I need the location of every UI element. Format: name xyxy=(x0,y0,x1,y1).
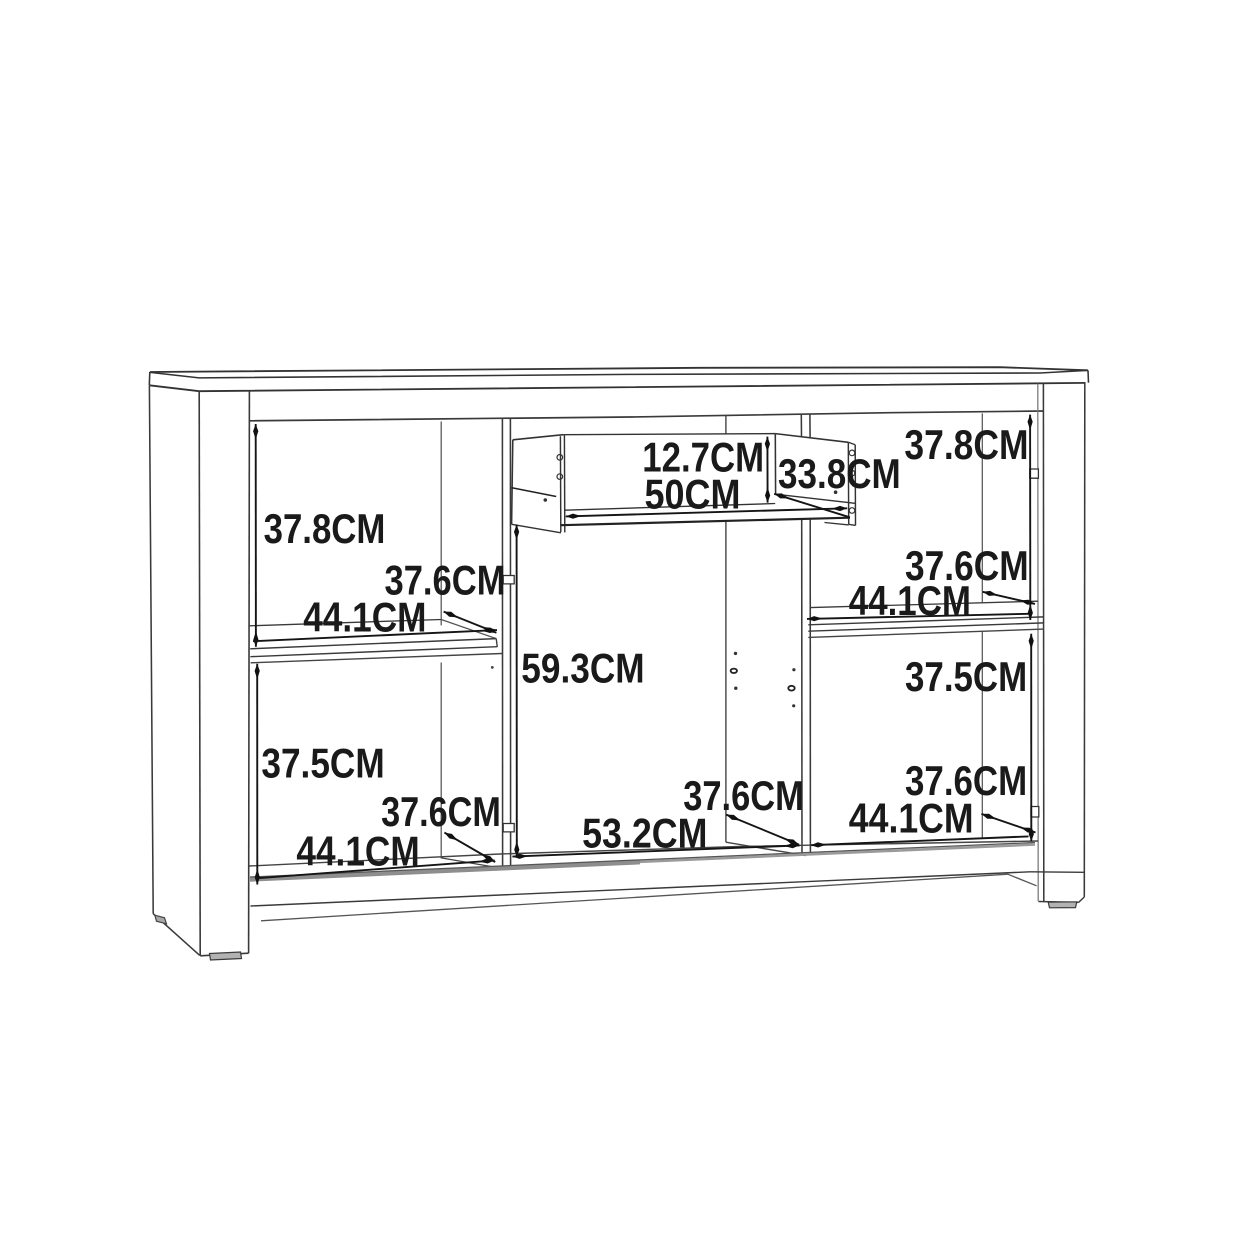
svg-text:37.8CM: 37.8CM xyxy=(904,421,1028,468)
svg-text:44.1CM: 44.1CM xyxy=(849,795,974,842)
svg-text:53.2CM: 53.2CM xyxy=(582,809,707,856)
svg-text:44.1CM: 44.1CM xyxy=(303,593,426,640)
svg-text:44.1CM: 44.1CM xyxy=(849,577,971,624)
svg-text:59.3CM: 59.3CM xyxy=(521,644,644,691)
svg-text:44.1CM: 44.1CM xyxy=(296,828,419,875)
svg-text:50CM: 50CM xyxy=(645,471,741,518)
svg-text:37.8CM: 37.8CM xyxy=(264,505,386,552)
svg-text:37.5CM: 37.5CM xyxy=(905,653,1027,700)
svg-text:37.5CM: 37.5CM xyxy=(261,739,384,786)
svg-text:33.8CM: 33.8CM xyxy=(778,450,901,497)
